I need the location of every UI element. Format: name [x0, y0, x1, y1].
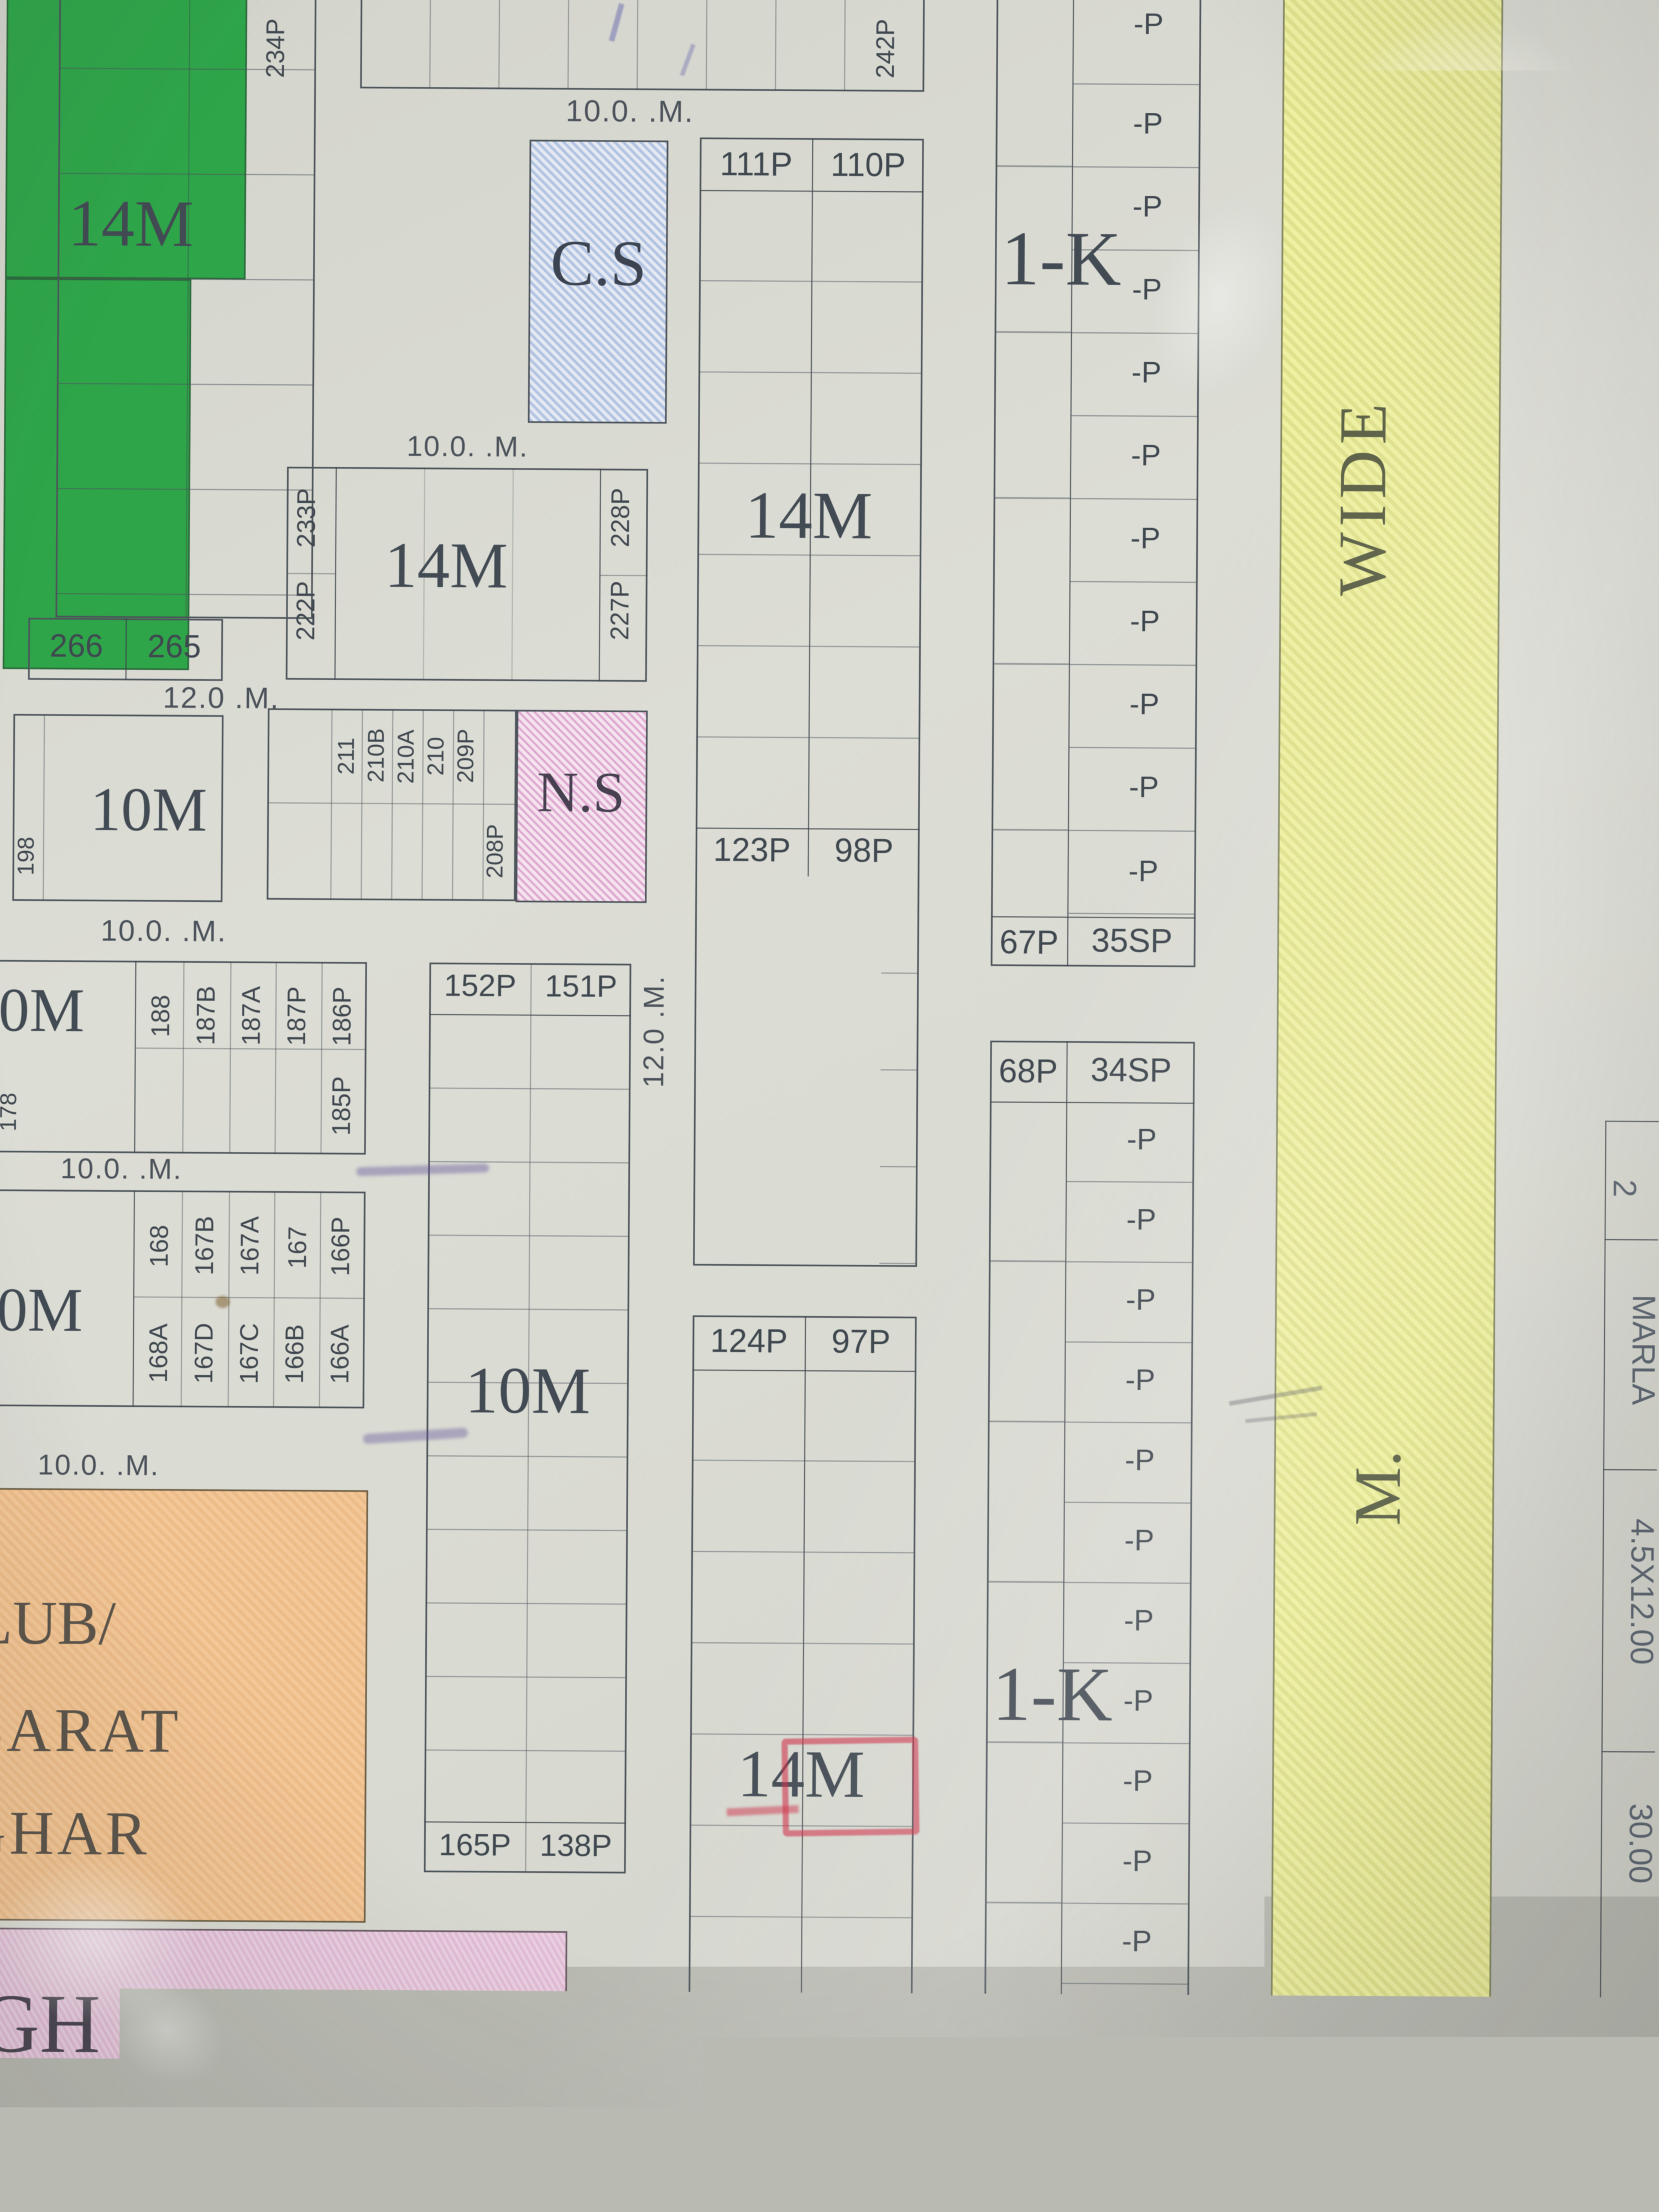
- plot-p: -P: [1109, 1525, 1170, 1556]
- road-label-12m-vertical: 12.0 .M.: [637, 968, 671, 1095]
- side-margin-enh-text: ENH: [1606, 2127, 1640, 2212]
- plot-p: -P: [1113, 772, 1174, 802]
- road-label-10m: 10.0. .M.: [566, 96, 709, 127]
- road-label-10m: 10.0. .M.: [38, 1451, 173, 1480]
- road-label-10m: 10.0. .M.: [101, 916, 261, 947]
- plot-166b: 166B: [279, 1308, 310, 1400]
- zone-label-1k: 1-K: [987, 1656, 1118, 1734]
- plot-19sp: 19SP: [1063, 2154, 1185, 2188]
- plot-165p: 165P: [426, 1829, 524, 1861]
- plot-266: 266: [29, 630, 123, 662]
- plot-p: -P: [1111, 1124, 1172, 1155]
- plot-p: -P: [1114, 689, 1175, 719]
- plot-198: 198: [12, 815, 39, 898]
- road-name-m: M.: [1340, 1437, 1415, 1540]
- plot-167c: 167C: [234, 1308, 264, 1399]
- plot-84p: 84P: [802, 2154, 909, 2188]
- plot-p: -P: [1115, 440, 1176, 471]
- zone-label-10m: 10M: [435, 1357, 620, 1425]
- school-label: SCHOOL: [83, 2141, 411, 2212]
- plot-152p: 152P: [431, 970, 529, 1001]
- zone-label-10m: 10M: [78, 779, 220, 842]
- plot-p: -P: [1111, 1204, 1172, 1235]
- plot-83p: 83P: [985, 2157, 1057, 2190]
- plot-227p: 227P: [604, 566, 635, 655]
- site-plan-map: WIDE M. 2 MARLA 4.5X12.00 30.00 ENH 14M …: [0, 0, 1659, 2212]
- plot-167d: 167D: [189, 1308, 219, 1399]
- zone-label-cs: C.S: [535, 231, 662, 296]
- plot-p: -P: [1107, 1846, 1168, 1876]
- plot-rows: [879, 877, 919, 1267]
- plot-222p: 222P: [290, 566, 321, 655]
- plot-p: -P: [1116, 357, 1177, 388]
- plot-167a: 167A: [234, 1201, 265, 1291]
- plot-rows: [991, 1, 1073, 917]
- plot-242p: 242P: [870, 7, 900, 90]
- plot-186p: 186P: [326, 971, 357, 1061]
- zone-label-1k: 1-K: [996, 220, 1126, 298]
- road-label-12m-vertical: 12.0. .M.: [630, 2030, 664, 2162]
- plot-p: -P: [1113, 856, 1173, 886]
- plot-p: -P: [1106, 2006, 1167, 2037]
- road-name-wide: WIDE: [1323, 362, 1402, 631]
- plot-p: -P: [1110, 1285, 1171, 1315]
- plot-210a: 210A: [391, 713, 420, 800]
- plot-35sp: 35SP: [1071, 924, 1193, 958]
- plot-p: -P: [1117, 191, 1178, 222]
- club-label-line3: GHAR: [0, 1802, 150, 1865]
- plot-p: -P: [1108, 1605, 1169, 1636]
- zone-label-14m: 14M: [39, 190, 222, 257]
- zone-label-10m-cut: 0M: [0, 979, 86, 1042]
- plot-34sp: 34SP: [1070, 1053, 1192, 1087]
- plot-167: 167: [282, 1210, 312, 1285]
- plot-111p: 111P: [702, 148, 810, 181]
- plot-166a: 166A: [325, 1308, 355, 1400]
- plot-p: -P: [1110, 1365, 1171, 1395]
- plot-167b: 167B: [189, 1201, 220, 1291]
- plot-124p: 124P: [695, 1324, 803, 1358]
- plot-123p: 123P: [698, 833, 806, 867]
- plot-98p: 98P: [811, 834, 917, 868]
- plot-168: 168: [144, 1204, 174, 1287]
- side-table-cell-marla: MARLA: [1627, 1256, 1659, 1444]
- side-table-line: [1603, 1469, 1657, 1471]
- road-label-10m: 10.0. .M.: [60, 1155, 196, 1184]
- zone-label-14m: 14M: [722, 482, 895, 550]
- zone-label-10m-cut: 0M: [0, 1279, 84, 1342]
- plot-110p: 110P: [815, 148, 921, 182]
- plot-187b: 187B: [190, 971, 221, 1061]
- plot-228p: 228P: [605, 473, 635, 562]
- plot-209p: 209P: [451, 712, 480, 800]
- plot-211: 211: [332, 716, 360, 796]
- side-table-cell-size: 4.5X12.00: [1625, 1483, 1657, 1701]
- zone-label-14m: 14M: [355, 533, 538, 599]
- plot-138p: 138P: [528, 1830, 624, 1861]
- plot-187p: 187P: [281, 971, 311, 1061]
- plot-p: -P: [1118, 108, 1178, 139]
- road-label-10m: 10.0. .M.: [406, 432, 536, 461]
- side-table-cell-marla-count: 2: [1608, 1144, 1641, 1233]
- plot-97p: 97P: [807, 1325, 914, 1359]
- plot-234p: 234P: [260, 7, 290, 90]
- plot-68p: 68P: [992, 1055, 1064, 1088]
- side-table-cell-area: 30.00: [1624, 1777, 1656, 1910]
- plot-67p: 67P: [993, 926, 1065, 959]
- club-label-line1: LUB/: [0, 1592, 116, 1655]
- side-table-line: [1605, 1121, 1659, 1123]
- plot-p: -P: [1114, 606, 1175, 637]
- zone-label-14m: 14M: [714, 1740, 888, 1809]
- plot-185p: 185P: [326, 1063, 357, 1149]
- plot-rows: [984, 1102, 1067, 2147]
- plot-p: -P: [1115, 523, 1176, 554]
- main-road-yellow: [1269, 0, 1503, 2212]
- side-table-line: [1601, 1751, 1655, 1753]
- plot-p: -P: [1107, 1926, 1167, 1957]
- plot-233p: 233P: [291, 473, 321, 562]
- plot-265: 265: [128, 630, 221, 663]
- map-photo-page: WIDE M. 2 MARLA 4.5X12.00 30.00 ENH 14M …: [0, 0, 1659, 2212]
- plot-p: -P: [1118, 9, 1179, 39]
- plot-187a: 187A: [236, 971, 266, 1061]
- plot-p: -P: [1107, 1766, 1168, 1796]
- plot-210: 210: [421, 717, 450, 795]
- plot-137p: 137P: [690, 2153, 798, 2187]
- school-label-gh: GH: [0, 1981, 101, 2066]
- plot-p: -P: [1105, 2086, 1166, 2117]
- block-top-strip: [360, 0, 925, 92]
- plot-168a: 168A: [143, 1307, 174, 1399]
- plot-208p: 208P: [480, 806, 509, 896]
- side-table-border: [1598, 1121, 1606, 2212]
- plot-188: 188: [145, 974, 176, 1057]
- zone-label-ns: N.S: [528, 764, 634, 822]
- plot-178: 178: [0, 1073, 21, 1151]
- plot-210b: 210B: [361, 712, 390, 799]
- plot-166p: 166P: [325, 1201, 356, 1291]
- plot-151p: 151P: [533, 971, 629, 1002]
- side-table-line: [1605, 1239, 1658, 1241]
- plot-p: -P: [1109, 1445, 1170, 1475]
- club-label-line2: BARAT: [0, 1699, 182, 1762]
